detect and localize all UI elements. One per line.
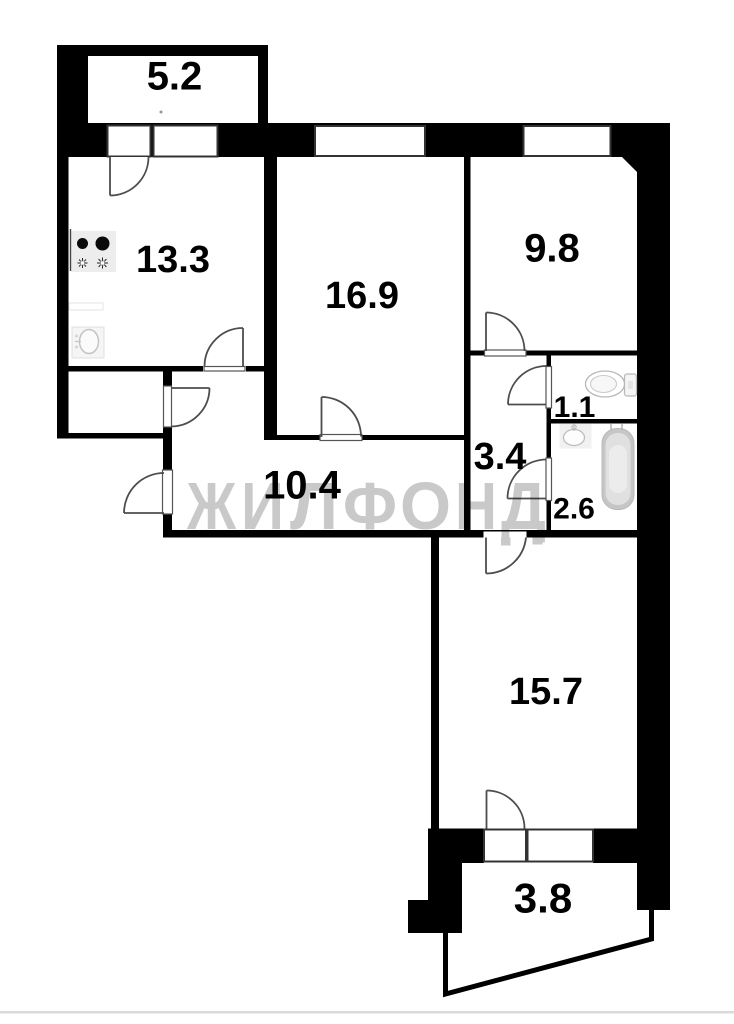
svg-text:10.4: 10.4 bbox=[263, 464, 342, 508]
svg-text:Ж: Ж bbox=[186, 469, 236, 544]
svg-text:13.3: 13.3 bbox=[136, 239, 210, 281]
svg-text:Д: Д bbox=[501, 469, 546, 544]
svg-text:16.9: 16.9 bbox=[325, 275, 399, 317]
svg-text:3.8: 3.8 bbox=[514, 874, 572, 921]
svg-text:Н: Н bbox=[455, 469, 497, 544]
svg-text:5.2: 5.2 bbox=[147, 55, 203, 99]
svg-text:О: О bbox=[400, 469, 451, 544]
svg-text:9.8: 9.8 bbox=[524, 227, 580, 271]
svg-text:3.4: 3.4 bbox=[474, 436, 527, 478]
svg-text:15.7: 15.7 bbox=[509, 671, 583, 713]
svg-text:Ф: Ф bbox=[343, 469, 397, 544]
svg-text:2.6: 2.6 bbox=[553, 493, 595, 526]
svg-text:1.1: 1.1 bbox=[554, 391, 596, 424]
